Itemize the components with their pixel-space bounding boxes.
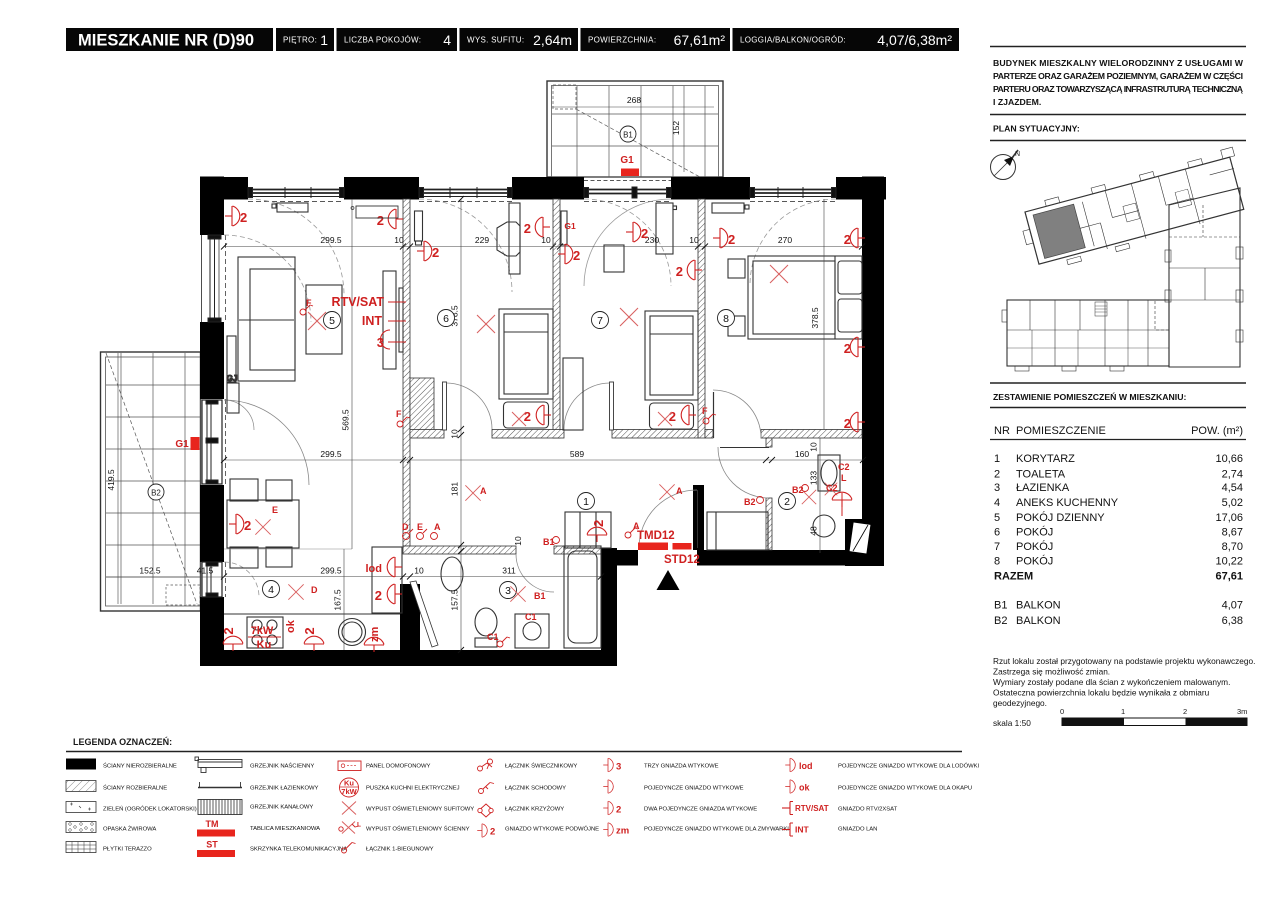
svg-text:Wymiary zostały podane dla ści: Wymiary zostały podane dla ścian z wykoń… [993, 677, 1230, 687]
svg-text:152: 152 [671, 121, 681, 135]
svg-text:ST: ST [206, 840, 218, 850]
svg-text:ŚCIANY ROZBIERALNE: ŚCIANY ROZBIERALNE [103, 784, 167, 792]
svg-text:F: F [702, 406, 708, 416]
svg-text:Rzut lokalu został przygotowan: Rzut lokalu został przygotowany na podst… [993, 656, 1255, 666]
svg-text:L: L [357, 822, 361, 829]
svg-text:2: 2 [641, 226, 648, 241]
svg-text:G1: G1 [175, 439, 189, 450]
svg-text:378.5: 378.5 [810, 307, 820, 329]
svg-text:589: 589 [570, 449, 584, 459]
svg-text:569.5: 569.5 [341, 409, 351, 431]
svg-text:INT: INT [362, 314, 383, 328]
svg-text:ŁĄCZNIK KRZYŻOWY: ŁĄCZNIK KRZYŻOWY [505, 806, 564, 813]
svg-text:5,02: 5,02 [1222, 497, 1243, 509]
svg-text:7kW: 7kW [341, 787, 357, 796]
svg-text:DWA POJEDYNCZE GNIAZDA WTYKOWE: DWA POJEDYNCZE GNIAZDA WTYKOWE [644, 807, 757, 813]
svg-text:8: 8 [994, 556, 1000, 568]
svg-text:POJEDYNCZE GNIAZDO WTYKOWE DLA: POJEDYNCZE GNIAZDO WTYKOWE DLA ZMYWARKI [644, 827, 789, 833]
svg-text:268: 268 [627, 95, 641, 105]
svg-text:D: D [402, 522, 409, 532]
svg-text:2: 2 [375, 588, 382, 603]
svg-text:GNIAZDO RTV/2XSAT: GNIAZDO RTV/2XSAT [838, 807, 898, 813]
svg-text:4,07: 4,07 [1222, 600, 1243, 612]
svg-text:B1: B1 [994, 600, 1007, 612]
svg-text:41.5: 41.5 [197, 566, 214, 576]
svg-text:PŁYTKI TERAZZO: PŁYTKI TERAZZO [103, 847, 152, 853]
svg-text:2: 2 [844, 416, 851, 431]
svg-text:BALKON: BALKON [1016, 600, 1061, 612]
svg-text:RTV/SAT: RTV/SAT [795, 804, 829, 813]
svg-text:67,61: 67,61 [1215, 571, 1243, 583]
svg-text:A: A [676, 486, 683, 496]
svg-text:ŁĄCZNIK 1-BIEGUNOWY: ŁĄCZNIK 1-BIEGUNOWY [366, 847, 434, 853]
svg-text:OPASKA ŻWIROWA: OPASKA ŻWIROWA [103, 826, 156, 833]
svg-text:G1: G1 [564, 221, 576, 231]
svg-text:POJEDYNCZE GNIAZDO WTYKOWE: POJEDYNCZE GNIAZDO WTYKOWE [644, 786, 744, 792]
svg-text:2,64m: 2,64m [533, 32, 572, 48]
svg-text:1: 1 [320, 32, 328, 48]
svg-text:PANEL DOMOFONOWY: PANEL DOMOFONOWY [366, 764, 430, 770]
svg-text:3: 3 [994, 482, 1000, 494]
svg-text:PIĘTRO:: PIĘTRO: [283, 36, 317, 45]
svg-text:PLAN SYTUACYJNY:: PLAN SYTUACYJNY: [993, 124, 1080, 134]
svg-text:10: 10 [394, 235, 404, 245]
svg-text:5: 5 [994, 512, 1000, 524]
svg-text:2: 2 [377, 213, 384, 228]
svg-text:ok: ok [285, 619, 297, 633]
svg-text:A: A [434, 522, 441, 532]
svg-text:6: 6 [994, 527, 1000, 539]
svg-text:299.5: 299.5 [320, 235, 342, 245]
svg-text:D: D [311, 585, 318, 595]
svg-text:BALKON: BALKON [1016, 615, 1061, 627]
svg-text:B1: B1 [623, 130, 633, 139]
svg-text:C1: C1 [525, 612, 537, 622]
svg-text:160: 160 [795, 449, 809, 459]
svg-text:ANEKS KUCHENNY: ANEKS KUCHENNY [1016, 497, 1119, 509]
svg-text:2: 2 [524, 409, 531, 424]
svg-text:8,70: 8,70 [1222, 541, 1243, 553]
svg-text:2: 2 [524, 221, 531, 236]
svg-text:MIESZKANIE NR (D)90: MIESZKANIE NR (D)90 [78, 32, 254, 50]
svg-text:LOGGIA/BALKON/OGRÓD:: LOGGIA/BALKON/OGRÓD: [740, 36, 846, 45]
svg-text:C1: C1 [487, 632, 499, 642]
svg-text:PUSZKA KUCHNI ELEKTRYCZNEJ: PUSZKA KUCHNI ELEKTRYCZNEJ [366, 786, 460, 792]
svg-text:419.5: 419.5 [106, 469, 116, 491]
svg-text:17,06: 17,06 [1215, 512, 1243, 524]
svg-text:2: 2 [240, 210, 247, 225]
svg-text:GNIAZDO LAN: GNIAZDO LAN [838, 827, 877, 833]
svg-text:2: 2 [302, 627, 317, 634]
svg-text:10,22: 10,22 [1215, 556, 1243, 568]
svg-text:zm: zm [616, 826, 629, 837]
svg-text:6,38: 6,38 [1222, 615, 1243, 627]
svg-text:LICZBA POKOJÓW:: LICZBA POKOJÓW: [344, 36, 421, 45]
svg-text:WYPUST OŚWIETLENIOWY ŚCIENNY: WYPUST OŚWIETLENIOWY ŚCIENNY [366, 825, 470, 833]
svg-text:TM: TM [206, 819, 219, 829]
svg-text:SKRZYNKA TELEKOMUNIKACYJNA: SKRZYNKA TELEKOMUNIKACYJNA [250, 847, 347, 853]
svg-text:ZESTAWIENIE POMIESZCZEŃ W MIES: ZESTAWIENIE POMIESZCZEŃ W MIESZKANIU: [993, 392, 1186, 402]
svg-text:lod: lod [366, 563, 383, 575]
svg-text:4: 4 [994, 497, 1000, 509]
svg-text:152.5: 152.5 [139, 566, 161, 576]
svg-text:POW. (m²): POW. (m²) [1191, 425, 1243, 437]
svg-text:1: 1 [583, 496, 589, 508]
svg-text:INT: INT [795, 825, 810, 835]
svg-text:TOALETA: TOALETA [1016, 469, 1066, 481]
svg-text:2: 2 [784, 496, 790, 508]
svg-text:ŁĄCZNIK SCHODOWY: ŁĄCZNIK SCHODOWY [505, 786, 566, 792]
svg-text:L: L [841, 473, 847, 483]
svg-text:ŚCIANY NIEROZBIERALNE: ŚCIANY NIEROZBIERALNE [103, 762, 177, 770]
svg-text:167.5: 167.5 [333, 589, 343, 611]
svg-text:E: E [417, 522, 423, 532]
svg-text:skala 1:50: skala 1:50 [993, 718, 1031, 728]
svg-text:0: 0 [1060, 707, 1064, 716]
svg-text:C2: C2 [826, 483, 838, 493]
svg-text:4: 4 [268, 584, 274, 596]
svg-text:2: 2 [994, 469, 1000, 481]
svg-text:POKÓJ: POKÓJ [1016, 540, 1053, 553]
svg-text:A: A [480, 486, 487, 496]
svg-text:POJEDYNCZE GNIAZDO WTYKOWE DLA: POJEDYNCZE GNIAZDO WTYKOWE DLA LODÓWKI [838, 763, 980, 770]
svg-text:6: 6 [443, 313, 449, 325]
svg-text:NR: NR [994, 425, 1010, 437]
svg-text:POKÓJ: POKÓJ [1016, 526, 1053, 539]
svg-text:3: 3 [616, 762, 621, 773]
svg-text:BUDYNEK MIESZKALNY WIELORODZ: BUDYNEK MIESZKALNY WIELORODZINNY Z USŁUG… [993, 58, 1244, 68]
svg-text:2: 2 [490, 827, 495, 838]
svg-text:G1: G1 [620, 155, 634, 166]
svg-text:WYS. SUFITU:: WYS. SUFITU: [467, 36, 524, 45]
svg-text:PARTERZE ORAZ GARAŻEM POZIEMN: PARTERZE ORAZ GARAŻEM POZIEMNYM, GARAŻEM… [993, 70, 1243, 81]
svg-text:7: 7 [597, 315, 603, 327]
svg-text:RTV/SAT: RTV/SAT [331, 295, 384, 309]
svg-text:48: 48 [809, 526, 819, 536]
svg-text:C2: C2 [838, 462, 850, 472]
svg-text:10: 10 [689, 235, 699, 245]
svg-text:B2: B2 [744, 497, 756, 507]
svg-text:E: E [272, 505, 278, 515]
svg-text:B2: B2 [994, 615, 1007, 627]
svg-text:7kW: 7kW [251, 625, 274, 637]
svg-text:10: 10 [513, 536, 523, 546]
svg-text:10: 10 [450, 429, 460, 439]
svg-text:229: 229 [475, 235, 489, 245]
svg-text:2: 2 [573, 248, 580, 263]
svg-text:ok: ok [799, 783, 810, 793]
svg-text:lod: lod [799, 761, 813, 771]
svg-text:B1: B1 [534, 591, 546, 601]
svg-text:POKÓJ DZIENNY: POKÓJ DZIENNY [1016, 511, 1105, 524]
svg-text:181: 181 [450, 482, 460, 496]
svg-text:I ZJAZDEM.: I ZJAZDEM. [993, 97, 1041, 107]
svg-text:2: 2 [616, 805, 621, 816]
svg-text:4,07/6,38m²: 4,07/6,38m² [877, 32, 952, 48]
svg-text:N: N [1015, 151, 1020, 158]
svg-text:GJ: GJ [227, 374, 238, 383]
svg-text:1: 1 [994, 453, 1000, 465]
svg-text:Ku: Ku [257, 639, 272, 651]
svg-text:133: 133 [809, 471, 819, 485]
svg-text:3m: 3m [1237, 707, 1247, 716]
svg-text:2: 2 [591, 520, 606, 527]
svg-text:POKÓJ: POKÓJ [1016, 555, 1053, 568]
svg-text:8,67: 8,67 [1222, 527, 1243, 539]
svg-text:Zastrzega się możliwość zmian.: Zastrzega się możliwość zmian. [993, 667, 1110, 677]
svg-text:LEGENDA OZNACZEŃ:: LEGENDA OZNACZEŃ: [73, 737, 172, 747]
svg-text:ZIELEŃ (OGRÓDEK LOKATORSKI): ZIELEŃ (OGRÓDEK LOKATORSKI) [103, 806, 197, 813]
svg-text:WYPUST OŚWIETLENIOWY SUFITOWY: WYPUST OŚWIETLENIOWY SUFITOWY [366, 805, 474, 813]
svg-text:4: 4 [443, 32, 451, 48]
svg-text:zm: zm [369, 627, 381, 643]
svg-text:2: 2 [728, 232, 735, 247]
svg-text:2: 2 [1183, 707, 1187, 716]
svg-text:GRZEJNIK KANAŁOWY: GRZEJNIK KANAŁOWY [250, 805, 313, 811]
svg-text:POMIESZCZENIE: POMIESZCZENIE [1016, 425, 1106, 437]
svg-text:ŁAZIENKA: ŁAZIENKA [1016, 482, 1070, 494]
svg-text:Ostateczna powierzchnia lokalu: Ostateczna powierzchnia lokalu będzie wy… [993, 688, 1210, 698]
svg-text:2: 2 [221, 627, 236, 634]
svg-text:GRZEJNIK ŁAZIENKOWY: GRZEJNIK ŁAZIENKOWY [250, 786, 319, 792]
svg-text:270: 270 [778, 235, 792, 245]
svg-text:GRZEJNIK NAŚCIENNY: GRZEJNIK NAŚCIENNY [250, 762, 314, 770]
svg-text:STD12: STD12 [664, 554, 700, 566]
svg-text:299.5: 299.5 [320, 449, 342, 459]
svg-text:TABLICA MIESZKANIOWA: TABLICA MIESZKANIOWA [250, 826, 320, 832]
svg-text:2: 2 [244, 518, 251, 533]
svg-text:5: 5 [329, 315, 335, 327]
svg-text:4,54: 4,54 [1222, 482, 1243, 494]
svg-text:2: 2 [676, 264, 683, 279]
svg-text:2: 2 [844, 341, 851, 356]
svg-text:67,61m²: 67,61m² [674, 32, 726, 48]
svg-text:geodezyjnego.: geodezyjnego. [993, 698, 1047, 708]
svg-text:7: 7 [994, 541, 1000, 553]
svg-text:GNIAZDO WTYKOWE PODWÓJNE: GNIAZDO WTYKOWE PODWÓJNE [505, 826, 599, 833]
svg-text:1: 1 [1121, 707, 1125, 716]
svg-text:2: 2 [432, 245, 439, 260]
svg-text:299.5: 299.5 [320, 566, 342, 576]
svg-text:PARTERU ORAZ TOWARZYSZĄCĄ INF: PARTERU ORAZ TOWARZYSZĄCĄ INFRASTRUTURĄ … [993, 84, 1244, 94]
svg-text:157.5: 157.5 [450, 589, 460, 611]
svg-text:B2: B2 [151, 488, 161, 497]
svg-text:KORYTARZ: KORYTARZ [1016, 453, 1075, 465]
svg-text:2: 2 [844, 232, 851, 247]
svg-text:POJEDYNCZE GNIAZDO WTYKOWE DLA: POJEDYNCZE GNIAZDO WTYKOWE DLA OKAPU [838, 786, 972, 792]
svg-text:2: 2 [669, 409, 676, 424]
svg-text:10,66: 10,66 [1215, 453, 1243, 465]
svg-text:TMD12: TMD12 [637, 530, 675, 542]
svg-text:RAZEM: RAZEM [994, 571, 1033, 583]
svg-text:10: 10 [414, 566, 424, 576]
svg-text:10: 10 [809, 442, 819, 452]
svg-text:8: 8 [723, 313, 729, 325]
svg-text:POWIERZCHNIA:: POWIERZCHNIA: [588, 36, 656, 45]
svg-text:311: 311 [502, 566, 516, 576]
svg-text:ŁĄCZNIK ŚWIECZNIKOWY: ŁĄCZNIK ŚWIECZNIKOWY [505, 762, 577, 770]
svg-text:F: F [396, 409, 402, 419]
svg-text:2,74: 2,74 [1222, 469, 1243, 481]
svg-text:TRZY GNIAZDA WTYKOWE: TRZY GNIAZDA WTYKOWE [644, 764, 719, 770]
